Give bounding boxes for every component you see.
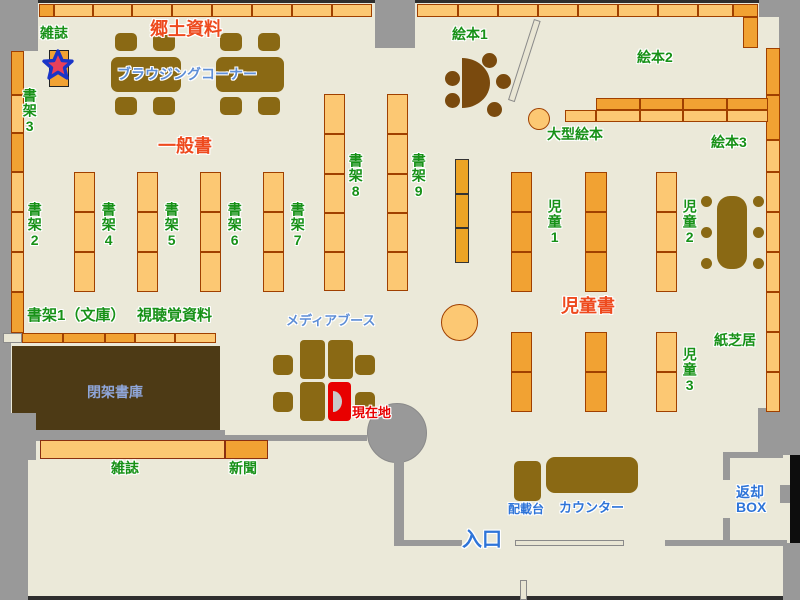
bookshelf-segment xyxy=(387,213,408,252)
bookshelf-segment xyxy=(387,252,408,291)
wall xyxy=(779,17,800,408)
wall xyxy=(0,0,38,51)
wall xyxy=(28,596,785,600)
bookshelf-segment xyxy=(263,212,284,252)
label-entrance: 入口 xyxy=(462,530,502,551)
bookshelf-segment xyxy=(766,140,780,172)
bookshelf-segment xyxy=(585,252,607,292)
bookshelf-segment xyxy=(263,172,284,212)
table xyxy=(717,196,747,269)
bookshelf-segment xyxy=(332,4,372,17)
label-shelf2: 書架2 xyxy=(27,202,42,249)
bookshelf-segment xyxy=(766,332,780,372)
bookshelf-segment xyxy=(137,212,158,252)
bookshelf-segment xyxy=(324,213,345,252)
bookshelf-segment xyxy=(727,110,768,122)
label-large-picture-books: 大型絵本 xyxy=(547,127,603,142)
bookshelf-segment xyxy=(455,194,469,228)
chair xyxy=(220,97,242,115)
bookshelf-segment xyxy=(39,4,54,17)
wall xyxy=(394,460,404,546)
bookshelf-segment xyxy=(565,110,596,122)
label-distribution-desk: 配載台 xyxy=(508,503,544,516)
media-booth-seat xyxy=(300,382,325,421)
magazine-rack xyxy=(40,440,225,459)
label-children3: 児童3 xyxy=(682,347,697,394)
bookshelf-segment xyxy=(417,4,458,17)
label-return-box: 返却 BOX xyxy=(736,485,766,514)
label-picture-books2: 絵本2 xyxy=(637,50,673,65)
bookshelf-segment xyxy=(596,110,640,122)
bookshelf-segment xyxy=(132,4,172,17)
chair xyxy=(273,355,293,375)
bookshelf-segment xyxy=(640,110,683,122)
bookshelf-segment xyxy=(766,372,780,412)
wall xyxy=(723,458,730,480)
bookshelf-segment xyxy=(538,4,578,17)
chair xyxy=(445,93,460,108)
bookshelf-segment xyxy=(656,332,677,372)
bookshelf-segment xyxy=(511,212,532,252)
label-children2: 児童2 xyxy=(682,199,697,246)
chair xyxy=(487,102,502,117)
bookshelf-segment xyxy=(656,252,677,292)
bookshelf-segment xyxy=(135,333,175,343)
wall xyxy=(783,543,800,600)
chair xyxy=(753,258,764,269)
chair xyxy=(220,33,242,51)
bookshelf-segment xyxy=(54,4,93,17)
bookshelf-segment xyxy=(683,98,727,110)
bookshelf-segment xyxy=(387,94,408,134)
bookshelf-segment xyxy=(640,98,683,110)
bookshelf-segment xyxy=(324,174,345,213)
wall xyxy=(780,485,790,503)
bookshelf-segment xyxy=(733,4,758,17)
return-box-opening xyxy=(790,455,800,543)
bookshelf-segment xyxy=(596,98,640,110)
chair xyxy=(701,196,712,207)
label-shelf1-bunko: 書架1（文庫） xyxy=(27,308,125,324)
label-browsing-corner: ブラウジングコーナー xyxy=(117,67,257,82)
chair xyxy=(115,33,137,51)
wall xyxy=(398,540,462,546)
bookshelf-segment xyxy=(656,372,677,412)
wall xyxy=(0,413,36,441)
bookshelf-segment xyxy=(137,252,158,292)
bookshelf-segment xyxy=(766,95,780,140)
bookshelf-segment xyxy=(511,332,532,372)
chair xyxy=(115,97,137,115)
bookshelf-segment xyxy=(105,333,135,343)
bookshelf-segment xyxy=(766,212,780,252)
pillar xyxy=(375,0,415,48)
label-shelf7: 書架7 xyxy=(290,202,305,249)
bookshelf-segment xyxy=(93,4,132,17)
wall xyxy=(0,460,28,600)
bookshelf-segment xyxy=(455,228,469,263)
bookshelf-segment xyxy=(498,4,538,17)
bookshelf-segment xyxy=(585,212,607,252)
chair xyxy=(153,97,175,115)
bookshelf-segment xyxy=(511,372,532,412)
bookshelf-segment xyxy=(263,252,284,292)
label-shelf9: 書架9 xyxy=(411,153,426,200)
bookshelf-segment xyxy=(74,212,95,252)
chair xyxy=(273,392,293,412)
label-magazines-bottom: 雑誌 xyxy=(111,461,139,476)
label-shelf8: 書架8 xyxy=(348,153,363,200)
outer-door xyxy=(520,580,527,600)
bookshelf-segment xyxy=(172,4,212,17)
media-booth-seat xyxy=(328,340,353,379)
bookshelf-segment xyxy=(11,133,24,172)
bookshelf-segment xyxy=(63,333,105,343)
label-children1: 児童1 xyxy=(547,199,562,246)
wall xyxy=(758,408,800,455)
bookshelf-segment xyxy=(11,252,24,292)
round-table xyxy=(441,304,478,341)
library-floor-map: 雑誌 郷土資料 ブラウジングコーナー 書架3 一般書 書架2 書架4 書架5 書… xyxy=(0,0,800,600)
newspaper-rack xyxy=(225,440,268,459)
chair xyxy=(445,71,460,86)
bookshelf-segment xyxy=(252,4,292,17)
entrance-door xyxy=(515,540,624,546)
bookshelf-segment xyxy=(455,159,469,194)
wall xyxy=(759,0,800,17)
chair xyxy=(701,258,712,269)
bookshelf-segment xyxy=(656,212,677,252)
label-closed-stacks: 閉架書庫 xyxy=(87,385,143,400)
bookshelf-segment xyxy=(698,4,733,17)
bookshelf-segment xyxy=(22,333,63,343)
chair xyxy=(753,196,764,207)
label-media-booth: メディアブース xyxy=(286,314,375,328)
bookshelf-segment xyxy=(511,252,532,292)
label-shelf3: 書架3 xyxy=(22,88,37,135)
bookshelf-segment xyxy=(200,212,221,252)
bookshelf-segment xyxy=(585,172,607,212)
star-icon xyxy=(41,48,75,82)
bookshelf-segment xyxy=(458,4,498,17)
label-kamishibai: 紙芝居 xyxy=(714,333,756,348)
label-current-location: 現在地 xyxy=(352,406,391,420)
bookshelf-segment xyxy=(11,172,24,212)
label-local-materials: 郷土資料 xyxy=(150,20,222,39)
label-audiovisual: 視聴覚資料 xyxy=(137,308,212,324)
bookshelf-segment xyxy=(74,252,95,292)
partition xyxy=(508,19,541,102)
label-shelf6: 書架6 xyxy=(227,202,242,249)
label-newspapers: 新聞 xyxy=(229,461,257,476)
label-magazines-top: 雑誌 xyxy=(40,26,68,41)
bookshelf-segment xyxy=(200,172,221,212)
bookshelf-segment xyxy=(727,98,768,110)
chair xyxy=(753,227,764,238)
label-counter: カウンター xyxy=(559,501,624,515)
label-general-books: 一般書 xyxy=(158,137,212,156)
bookshelf-segment xyxy=(387,134,408,174)
label-shelf4: 書架4 xyxy=(101,202,116,249)
bookshelf-segment xyxy=(212,4,252,17)
bookshelf-segment xyxy=(683,110,727,122)
bookshelf-segment xyxy=(618,4,658,17)
chair xyxy=(258,97,280,115)
bookshelf-segment xyxy=(11,212,24,252)
bookshelf-segment xyxy=(324,94,345,134)
chair xyxy=(355,355,375,375)
wall xyxy=(723,452,783,458)
distribution-desk xyxy=(514,461,541,501)
chair xyxy=(701,227,712,238)
media-booth-seat xyxy=(300,340,325,379)
bookshelf-segment xyxy=(766,48,780,95)
bookshelf-segment xyxy=(292,4,332,17)
label-children-books: 児童書 xyxy=(561,297,615,316)
bookshelf-segment xyxy=(656,172,677,212)
bookshelf-segment xyxy=(11,292,24,333)
chair xyxy=(482,53,497,68)
bookshelf-segment xyxy=(585,332,607,372)
bookshelf-segment xyxy=(324,252,345,291)
chair xyxy=(258,33,280,51)
bookshelf-segment xyxy=(200,252,221,292)
chair xyxy=(496,74,511,89)
bookshelf-segment xyxy=(137,172,158,212)
bookshelf-segment xyxy=(658,4,698,17)
bench xyxy=(3,333,22,343)
label-picture-books1: 絵本1 xyxy=(452,27,488,42)
bookshelf-segment xyxy=(175,333,216,343)
counter-desk xyxy=(546,457,638,493)
bookshelf-segment xyxy=(585,372,607,412)
bookshelf-segment xyxy=(387,174,408,213)
bookshelf-segment xyxy=(766,172,780,212)
label-shelf5: 書架5 xyxy=(164,202,179,249)
bookshelf-segment xyxy=(511,172,532,212)
bookshelf-segment xyxy=(74,172,95,212)
bookshelf-segment xyxy=(743,17,758,48)
bookshelf-segment xyxy=(766,252,780,292)
wall xyxy=(723,518,730,546)
bookshelf-segment xyxy=(324,134,345,174)
bookshelf-segment xyxy=(766,292,780,332)
label-picture-books3: 絵本3 xyxy=(711,135,747,150)
bookshelf-segment xyxy=(578,4,618,17)
